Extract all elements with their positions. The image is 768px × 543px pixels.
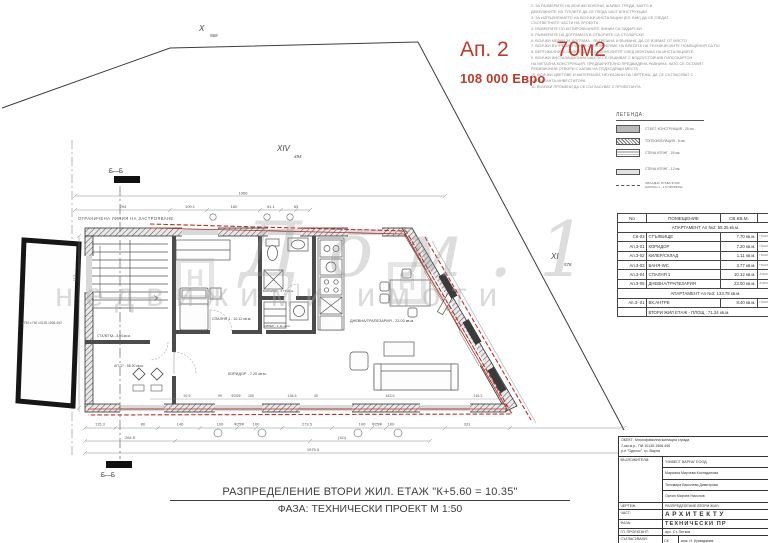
entry-door-symbols xyxy=(133,368,163,391)
dashed-line-swatch-icon xyxy=(616,185,640,186)
restriction-line-label: ОГРАНИЧЕНА ЛИНИЯ НА ЗАСТРОЯВАНЕ xyxy=(78,216,174,221)
apartment3-group-row: АПАРТАМЕНТ Ап №3: 133.78 кв.м. xyxy=(618,289,768,298)
drawing-title-line2: ФАЗА: ТЕХНИЧЕСКИ ПРОЕКТ М 1:50 xyxy=(170,501,570,515)
neighbor-parcel-label: УПИ с ПИ 10135.1506.492 xyxy=(22,321,62,325)
dim-bot-1: 80 xyxy=(141,422,146,427)
room-label-bath: БАНЯ/WC - 3.77 кв.м. xyxy=(263,289,294,293)
insulation-swatch-icon xyxy=(616,138,640,145)
dim-total-bottom: 1575.5 xyxy=(307,447,320,452)
dim-mid-5: 40 xyxy=(314,394,318,398)
dim-bot-3: 100 xyxy=(217,422,224,427)
dim-top-1: 109.1 xyxy=(185,204,196,209)
dim-bot-5: 100 xyxy=(253,422,260,427)
title-block-part-row: ЧАСТ: АРХИТЕКТУ xyxy=(619,509,768,519)
dim-top-0: 294 xyxy=(120,204,127,209)
dim-mid-4: 136.5 xyxy=(288,394,297,398)
legend-title: ЛЕГЕНДА: xyxy=(616,112,766,118)
legend-item-wall25: СТЕНА ИТОНГ - 25 см. xyxy=(616,149,766,157)
legend-item-insulation: ТОПЛОИЗОЛАЦИЯ - 8 см. xyxy=(616,138,766,145)
table-row: СК-03 СТЪЛБИЩЕ 7.70 кв.м. ГРАНИТОГРЕС xyxy=(618,232,768,241)
legend-item-wall12: СТЕНА ИТОНГ - 12 см. xyxy=(616,163,766,175)
legend-divider xyxy=(616,120,704,121)
parcel-x-num: 569 xyxy=(210,33,218,38)
parcel-xi-id: XI xyxy=(550,252,559,261)
title-block: ОБЕКТ: Многофамилна жилищна сграда 7-ми … xyxy=(618,436,768,543)
apartment-number-label: Ап. 2 xyxy=(460,38,509,62)
parcel-xi-num: 578 xyxy=(564,262,572,267)
legend: ЛЕГЕНДА: СТ.БЕТ. КОНСТРУКЦИЯ - 25 см. ТО… xyxy=(616,112,766,193)
dim-bot-6: 273.5 xyxy=(302,422,313,427)
title-block-drawing-row: ЧЕРТЕЖ: РАЗПРЕДЕЛЕНИЕ ВТОРИ ЖИЛ. xyxy=(619,502,768,509)
dim-mid-0: 92.5 xyxy=(184,394,191,398)
parcel-xiv-num: 494 xyxy=(294,154,302,159)
drawing-title: РАЗПРЕДЕЛЕНИЕ ВТОРИ ЖИЛ. ЕТАЖ "К+5.60 = … xyxy=(170,486,570,515)
room-label-bedroom: СПАЛНЯ 1 - 10.12 кв.м. xyxy=(212,317,251,321)
dim-bot-7: 100 xyxy=(359,422,366,427)
dim-mid-3: 100 xyxy=(248,394,254,398)
table-row: Ап.3-03 БАНЯ-WC 3.77 кв.м. ГРАНИТОГРЕС xyxy=(618,260,768,269)
staircase xyxy=(92,240,168,312)
table-row: Ап.3-05 ДНЕВНА/ТРАПЕЗАРИЯ 23.00 кв.м. ЛА… xyxy=(618,279,768,288)
title-block-object-row: ОБЕКТ: Многофамилна жилищна сграда 7-ми … xyxy=(619,437,768,456)
dim-bot-4: Ф25Ф xyxy=(234,422,245,427)
table-row: Ап.3-01 КОРИДОР 7.20 кв.м. ГРАНИТОГРЕС xyxy=(618,242,768,251)
listing-annotation: Ап. 2 70м2 108 000 Евро xyxy=(460,38,606,86)
title-block-phase-row: ФАЗА: ТЕХНИЧЕСКИ ПР xyxy=(619,519,768,528)
dim-top-4: 83 xyxy=(294,204,299,209)
apartment-area-label: 70м2 xyxy=(557,38,606,62)
parcel-x-id: X xyxy=(198,24,205,33)
masonry-wall-25-swatch-icon xyxy=(616,149,640,157)
dim-left: 117 xyxy=(72,274,77,281)
dim-bot-0: 115.3 xyxy=(95,422,105,427)
architectural-drawing-sheet: X 569 XIV 494 XI 578 I 492 УПИ с ПИ 1013… xyxy=(0,0,768,543)
room-schedule-table: No ПОМЕЩЕНИЕ СВ.КВ.М. ПОД АПАРТАМЕНТ Ап … xyxy=(617,213,768,317)
dim-bot-8: Ф25Ф xyxy=(372,422,383,427)
table-row: Ап.3-04 СПАЛНЯ 1 10.12 кв.м. ЛАМИНАТ xyxy=(618,270,768,279)
dim-bot2-0: 264.5 xyxy=(125,435,136,440)
dim-mid-7: 116.3 xyxy=(474,394,483,398)
dim-bot2-1: (111) xyxy=(338,435,347,440)
table-row: Ап.3-02 КИЛЕР/СКЛАД 1.11 кв.м. ГРАНИТОГР… xyxy=(618,251,768,260)
legend-item-concrete: СТ.БЕТ. КОНСТРУКЦИЯ - 25 см. xyxy=(616,125,766,133)
concrete-wall-swatch-icon xyxy=(616,125,640,133)
dim-top-2: 160 xyxy=(231,204,238,209)
legend-item-pipe: ОБСАДНА ТРЪБА Ф 200 НАКЛОН 1 - 1.5 ПРОМИ… xyxy=(616,181,766,189)
title-block-approvals-row: СЪГЛАСУВАЛИ: СК инж. Н. Куюмджиев ЕЛ инж… xyxy=(619,535,768,543)
title-block-chief-designer-row: ГЛ. ПРОЕКТАНТ: арх. Ст. Петков xyxy=(619,528,768,535)
room-label-corridor: КОРИДОР - 7.20 кв.м. xyxy=(228,372,267,376)
masonry-wall-12-swatch-icon xyxy=(616,169,640,175)
dim-total-top: 1066 xyxy=(239,191,249,196)
table-header-row: No ПОМЕЩЕНИЕ СВ.КВ.М. ПОД xyxy=(618,214,768,223)
apartment2-group-row: АПАРТАМЕНТ Ап №2: 55.25 кв.м. xyxy=(618,223,768,232)
price-label: 108 000 Евро xyxy=(460,71,606,86)
room-label-stairs: СТ.КЛЕТКА - 8.04 кв.м. xyxy=(97,334,131,338)
room-label-closet: КИЛЕР - 1.11 кв.м. xyxy=(264,324,291,328)
drawing-title-line1: РАЗПРЕДЕЛЕНИЕ ВТОРИ ЖИЛ. ЕТАЖ "К+5.60 = … xyxy=(170,486,570,501)
title-block-clients-row: ВЪЗЛОЖИТЕЛИ: "ИНВЕСТ ВАРНА" ЕООД Мариана… xyxy=(619,456,768,502)
parcel-xiv-id: XIV xyxy=(276,144,291,153)
dim-top-3: 61.1 xyxy=(267,204,276,209)
dim-mid-1: 99 xyxy=(218,394,222,398)
room-label-living: ДНЕВНА/ТРАПЕЗАРИЯ - 23.00 кв.м. xyxy=(350,319,414,323)
room-label-apartment: АП "2" - 55.20 кв.м. xyxy=(114,364,144,368)
section-label-bottom: Б—Б xyxy=(101,473,115,479)
furniture xyxy=(176,238,458,390)
dim-bot-2: 146 xyxy=(177,422,184,427)
dim-bot-9: 100 xyxy=(388,422,395,427)
dim-bot-10: 331 xyxy=(464,422,471,427)
table-row: Ап.3- 01 ВХ.АНТРЕ 8.40 кв.м. ГРАНИТОГРЕС xyxy=(618,298,768,307)
section-label-top: Б—Б xyxy=(109,169,123,175)
table-footer-row: ВТОРИ ЖИЛ ЕТАЖ - ПЛОЩ : 71.34 кв.м. xyxy=(618,307,768,316)
neighbor-building: УПИ с ПИ 10135.1506.492 xyxy=(18,240,79,406)
dim-mid-2: Ф25Ф xyxy=(231,394,241,398)
dim-mid-6: 443.5 xyxy=(386,394,395,398)
